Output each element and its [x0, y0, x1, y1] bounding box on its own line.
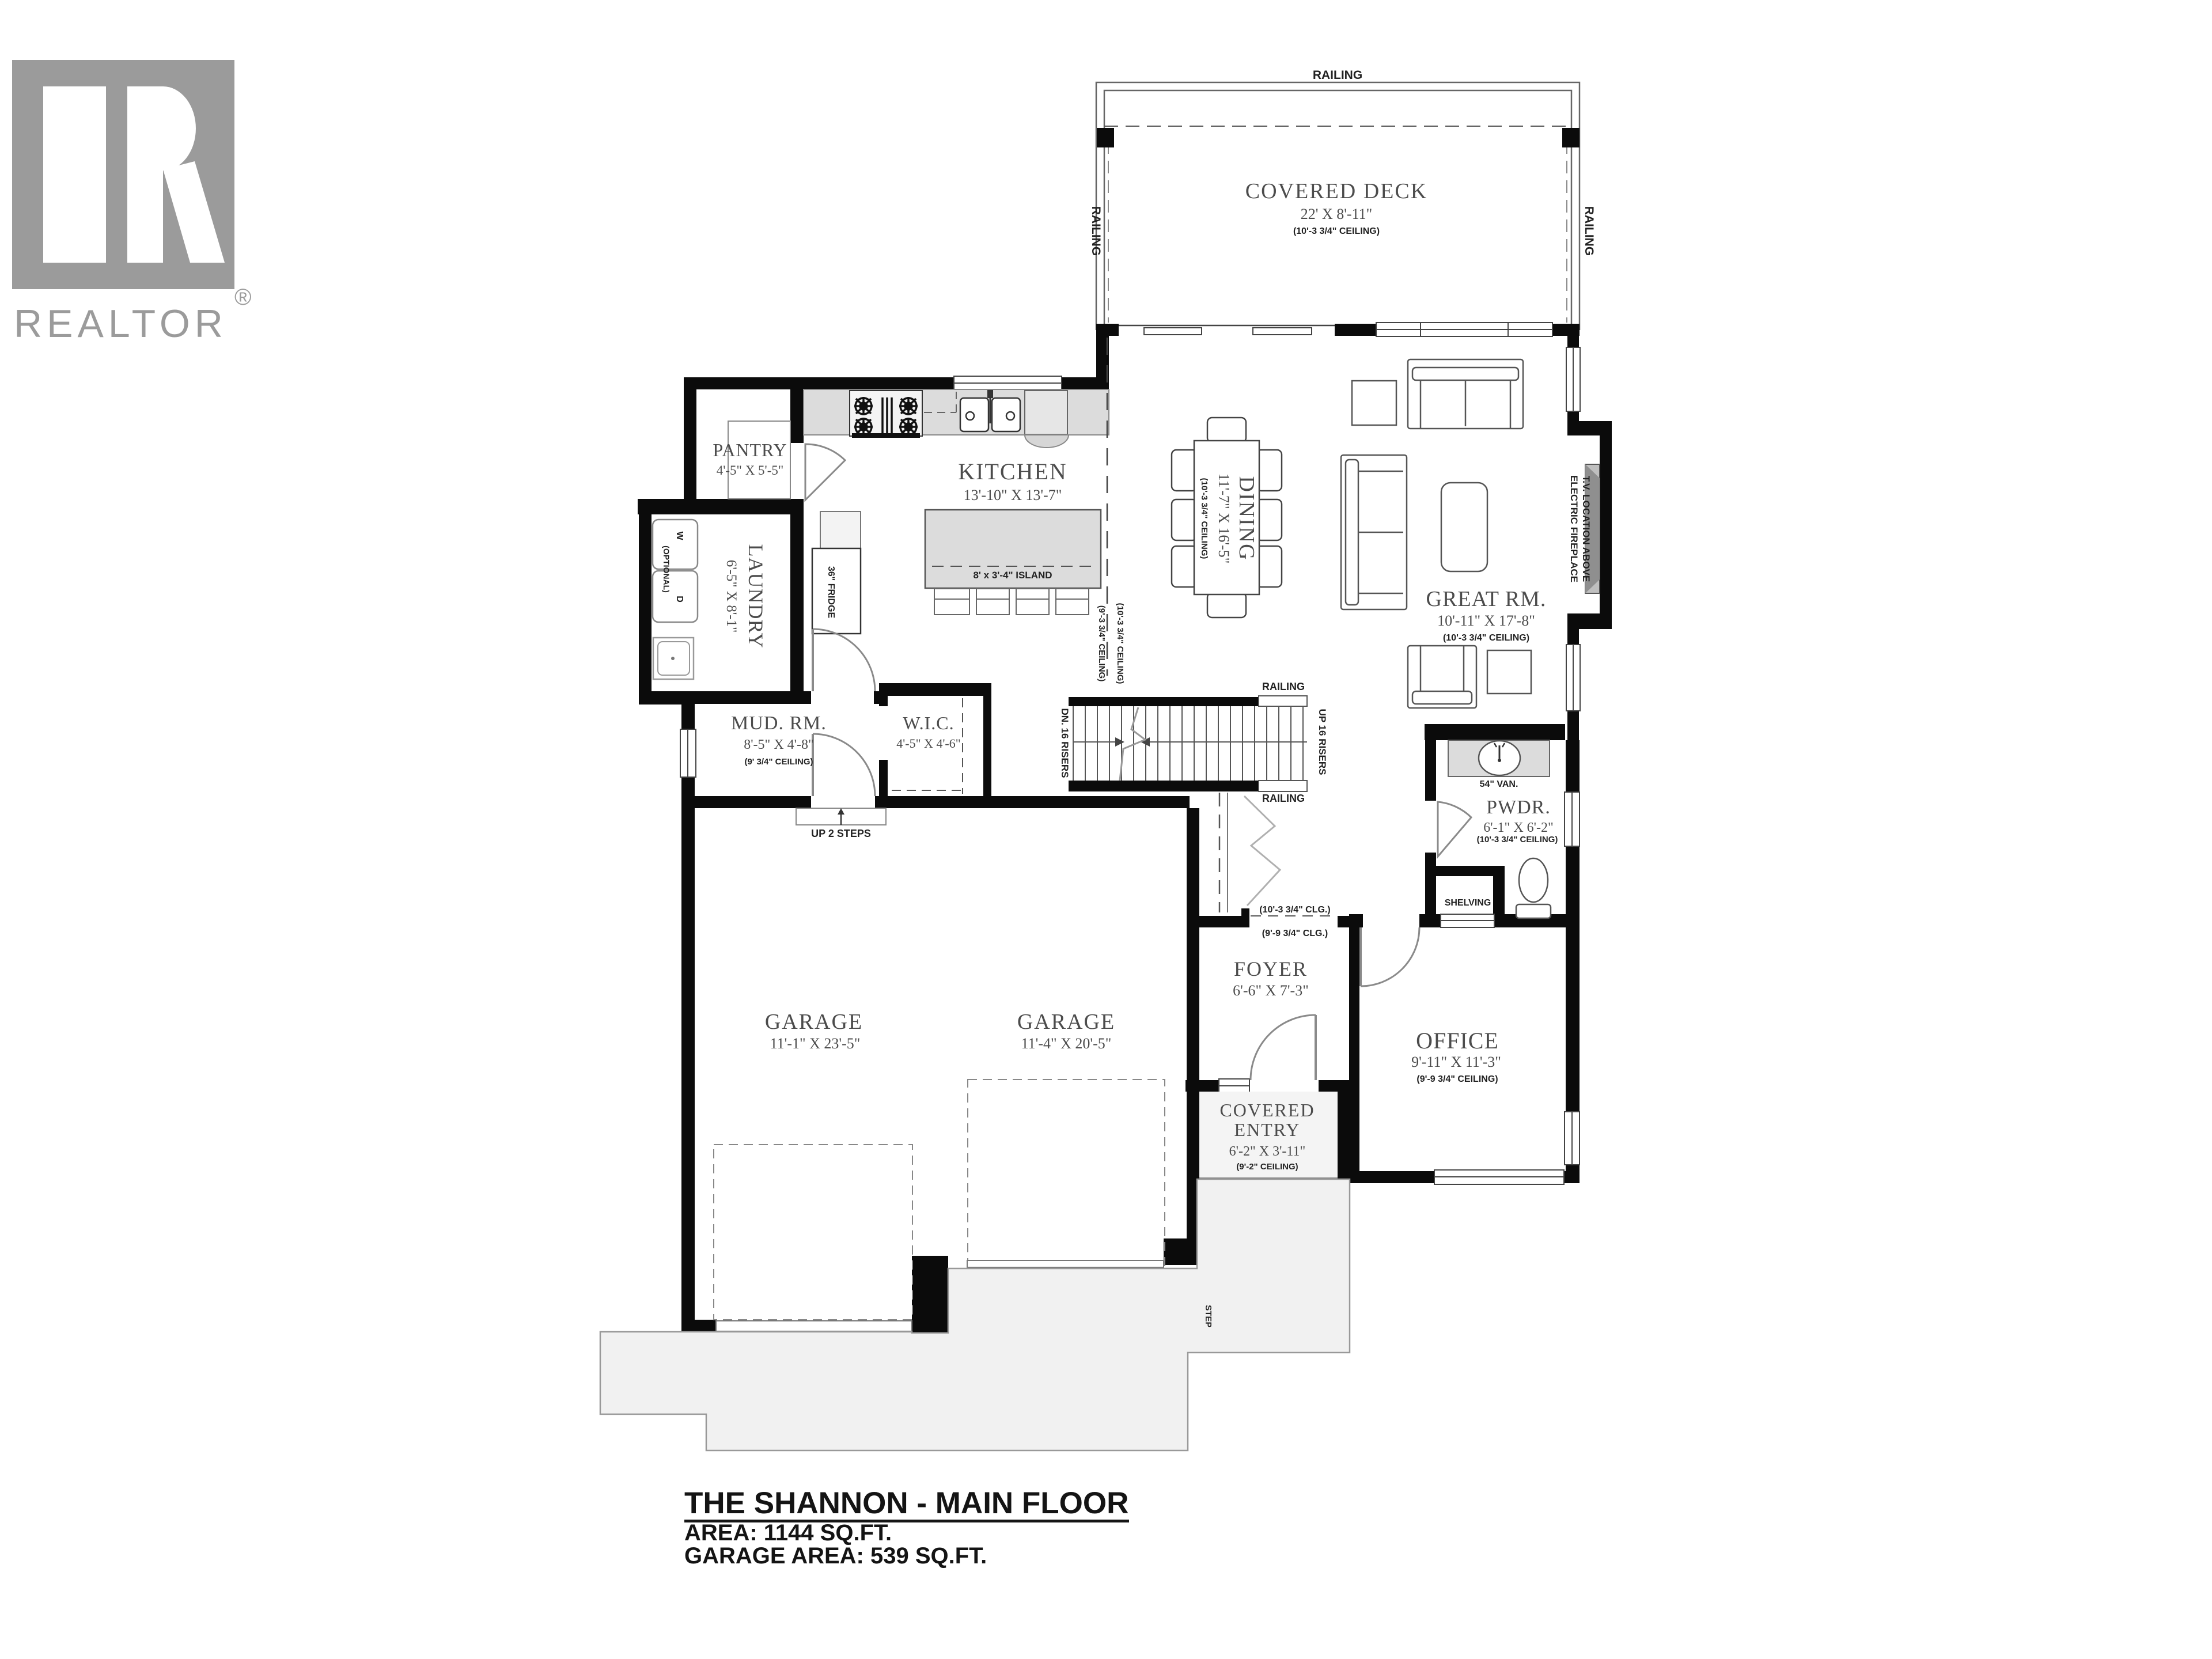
svg-text:AREA: 1144 SQ.FT.: AREA: 1144 SQ.FT.	[684, 1520, 892, 1546]
svg-text:(10'-3 3/4" CEILING): (10'-3 3/4" CEILING)	[1477, 835, 1558, 844]
svg-text:RAILING: RAILING	[1582, 206, 1596, 256]
svg-text:8'-5" X 4'-8": 8'-5" X 4'-8"	[744, 737, 814, 752]
svg-text:8' x 3'-4" ISLAND: 8' x 3'-4" ISLAND	[973, 570, 1052, 581]
svg-text:STEP: STEP	[1203, 1305, 1213, 1327]
svg-text:4'-5" X 4'-6": 4'-5" X 4'-6"	[896, 736, 960, 751]
svg-text:(OPTIONAL): (OPTIONAL)	[662, 546, 671, 593]
svg-text:®: ®	[234, 285, 251, 310]
svg-text:9'-11" X 11'-3": 9'-11" X 11'-3"	[1411, 1054, 1501, 1070]
svg-text:6'-6" X 7'-3": 6'-6" X 7'-3"	[1233, 982, 1309, 999]
svg-text:RAILING: RAILING	[1089, 206, 1103, 256]
svg-text:GARAGE: GARAGE	[1017, 1010, 1115, 1034]
svg-text:RAILING: RAILING	[1262, 793, 1305, 804]
svg-text:THE SHANNON - MAIN FLOOR: THE SHANNON - MAIN FLOOR	[684, 1486, 1128, 1520]
svg-text:13'-10" X 13'-7": 13'-10" X 13'-7"	[964, 487, 1062, 503]
svg-text:RAILING: RAILING	[1313, 69, 1362, 82]
svg-text:22' X 8'-11": 22' X 8'-11"	[1301, 206, 1372, 222]
svg-text:UP 16 RISERS: UP 16 RISERS	[1317, 709, 1328, 775]
svg-text:T.V. LOCATION ABOVE: T.V. LOCATION ABOVE	[1581, 476, 1592, 582]
svg-text:10'-11" X 17'-8": 10'-11" X 17'-8"	[1437, 612, 1535, 629]
svg-text:6'-1" X 6'-2": 6'-1" X 6'-2"	[1483, 820, 1554, 835]
svg-text:(9'-2" CEILING): (9'-2" CEILING)	[1236, 1162, 1298, 1172]
svg-text:REALTOR: REALTOR	[14, 302, 228, 346]
svg-text:LAUNDRY: LAUNDRY	[744, 544, 767, 648]
svg-text:COVERED: COVERED	[1219, 1100, 1315, 1120]
svg-text:SHELVING: SHELVING	[1445, 898, 1491, 908]
svg-text:(10'-3 3/4" CEILING): (10'-3 3/4" CEILING)	[1293, 226, 1380, 236]
svg-text:6'-5" X 8'-1": 6'-5" X 8'-1"	[724, 560, 739, 633]
svg-text:(10'-3 3/4" CEILING): (10'-3 3/4" CEILING)	[1199, 478, 1209, 559]
svg-text:UP 2 STEPS: UP 2 STEPS	[811, 828, 871, 839]
svg-text:(10'-3 3/4" CLG.): (10'-3 3/4" CLG.)	[1259, 905, 1330, 915]
svg-text:PWDR.: PWDR.	[1486, 797, 1551, 818]
svg-text:6'-2" X 3'-11": 6'-2" X 3'-11"	[1229, 1144, 1306, 1159]
svg-text:GARAGE AREA: 539 SQ.FT.: GARAGE AREA: 539 SQ.FT.	[684, 1543, 987, 1569]
svg-text:OFFICE: OFFICE	[1416, 1028, 1499, 1054]
svg-text:(9'-9 3/4" CLG.): (9'-9 3/4" CLG.)	[1262, 929, 1328, 938]
svg-text:PANTRY: PANTRY	[713, 440, 787, 460]
svg-text:54" VAN.: 54" VAN.	[1480, 779, 1518, 789]
svg-text:FOYER: FOYER	[1234, 957, 1308, 980]
svg-text:4'-5" X 5'-5": 4'-5" X 5'-5"	[717, 463, 784, 478]
svg-text:DN. 16 RISERS: DN. 16 RISERS	[1059, 709, 1070, 778]
svg-text:DINING: DINING	[1234, 476, 1259, 560]
svg-text:11'-1" X 23'-5": 11'-1" X 23'-5"	[770, 1035, 861, 1052]
svg-text:GARAGE: GARAGE	[765, 1010, 863, 1034]
svg-text:COVERED DECK: COVERED DECK	[1245, 179, 1427, 203]
svg-text:ENTRY: ENTRY	[1234, 1119, 1301, 1140]
svg-text:W: W	[675, 531, 684, 540]
svg-text:(9' 3/4" CEILING): (9' 3/4" CEILING)	[744, 757, 813, 767]
svg-text:11'-7" X 16'-5": 11'-7" X 16'-5"	[1215, 474, 1232, 564]
svg-text:MUD. RM.: MUD. RM.	[731, 713, 827, 734]
svg-text:W.I.C.: W.I.C.	[903, 713, 954, 733]
svg-text:KITCHEN: KITCHEN	[958, 459, 1067, 484]
svg-text:(9'-3 3/4" CEILING): (9'-3 3/4" CEILING)	[1097, 605, 1107, 681]
svg-text:ELECTRIC FIREPLACE: ELECTRIC FIREPLACE	[1569, 475, 1580, 582]
svg-text:11'-4" X 20'-5": 11'-4" X 20'-5"	[1021, 1035, 1112, 1052]
svg-text:(10'-3 3/4" CEILING): (10'-3 3/4" CEILING)	[1443, 633, 1529, 643]
svg-text:(10'-3 3/4" CEILING): (10'-3 3/4" CEILING)	[1115, 603, 1125, 684]
svg-text:(9'-9 3/4" CEILING): (9'-9 3/4" CEILING)	[1416, 1074, 1498, 1084]
svg-text:GREAT RM.: GREAT RM.	[1426, 587, 1547, 611]
svg-text:RAILING: RAILING	[1262, 681, 1305, 692]
svg-text:36" FRIDGE: 36" FRIDGE	[826, 566, 836, 619]
svg-text:D: D	[675, 596, 684, 603]
